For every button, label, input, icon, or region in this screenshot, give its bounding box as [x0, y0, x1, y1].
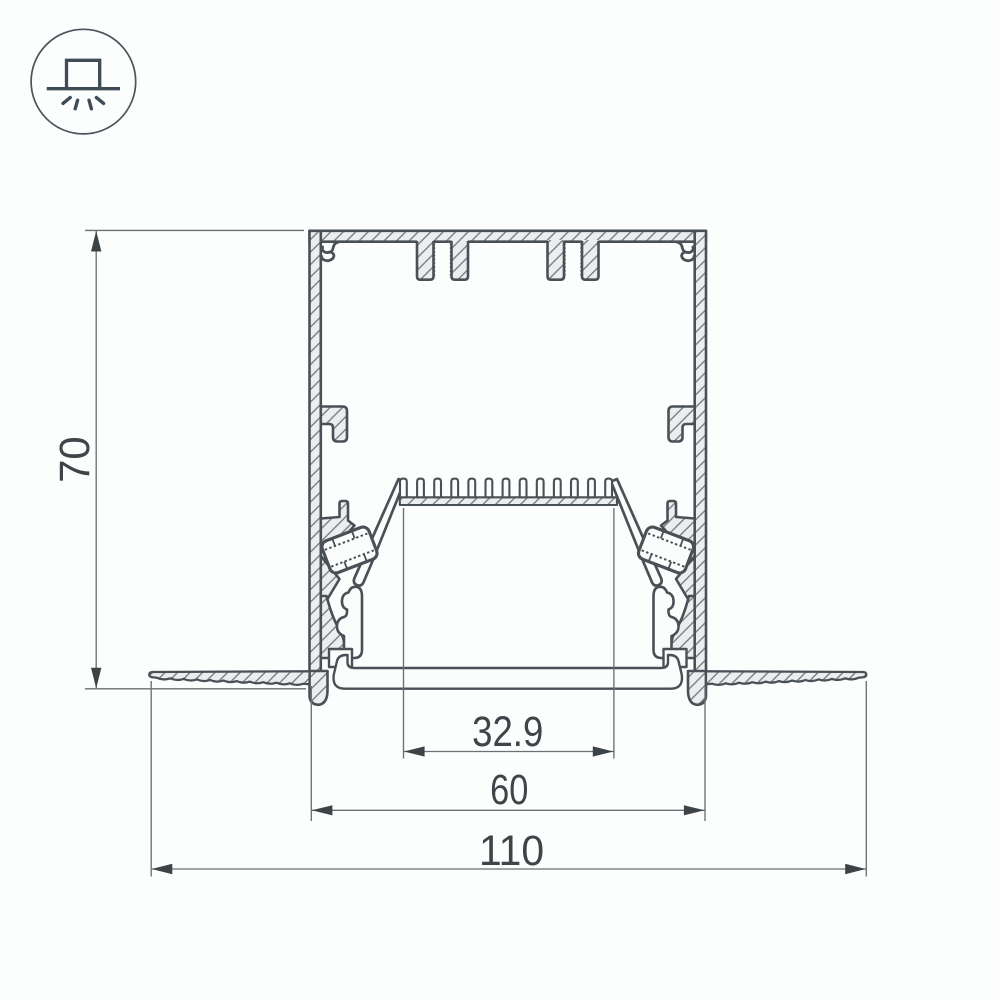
svg-text:60: 60 — [490, 766, 528, 813]
svg-text:110: 110 — [479, 826, 544, 874]
svg-text:32.9: 32.9 — [472, 708, 543, 755]
svg-text:70: 70 — [50, 436, 98, 482]
